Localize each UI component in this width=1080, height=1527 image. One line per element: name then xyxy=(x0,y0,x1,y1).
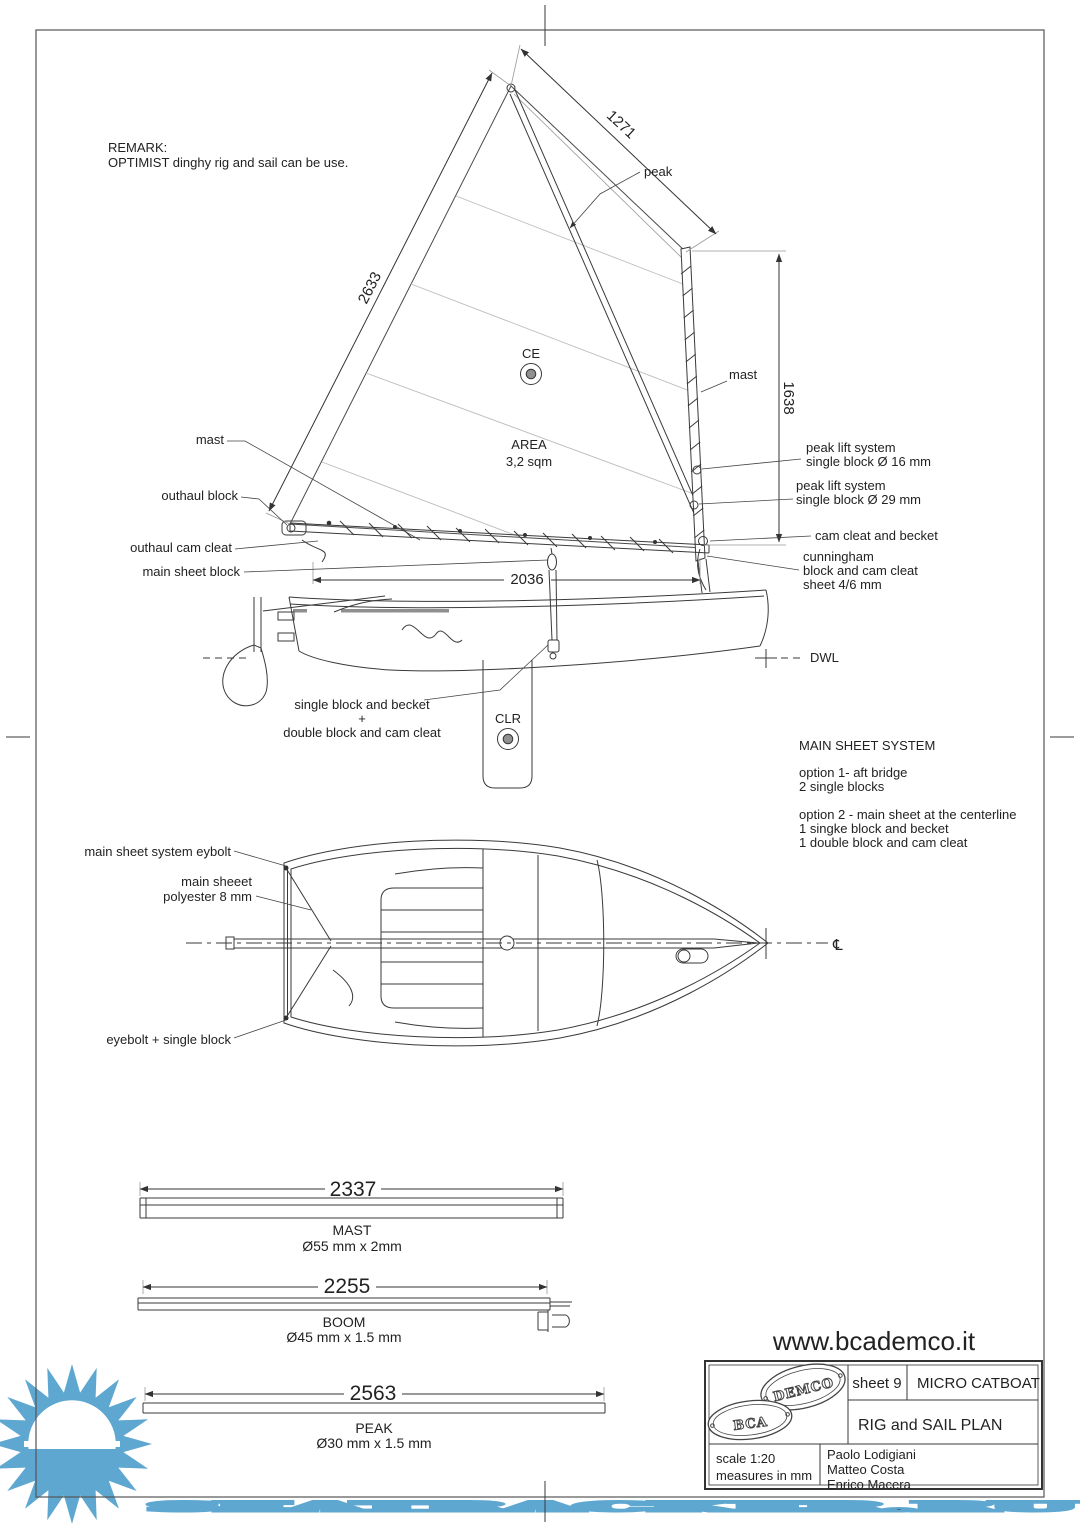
mast-callout-right: mast xyxy=(729,367,758,382)
plan-slot-circle xyxy=(678,950,690,962)
dim-leech-label: 2633 xyxy=(355,269,385,306)
callout-outhaul-block: outhaul block xyxy=(161,488,238,503)
mss-title: MAIN SHEET SYSTEM xyxy=(799,738,935,753)
callout-outhaul-cam-cleat: outhaul cam cleat xyxy=(130,540,232,555)
clr-label: CLR xyxy=(495,711,521,726)
plan-view-linework xyxy=(186,840,828,1046)
boom-length: 2255 xyxy=(324,1275,371,1298)
main-sheet-lower-fitting xyxy=(548,640,559,652)
peak-section: Ø30 mm x 1.5 mm xyxy=(316,1435,431,1451)
mss-option2-l1: option 2 - main sheet at the centerline xyxy=(799,807,1017,822)
mss-option2-l3: 1 double block and cam cleat xyxy=(799,835,968,850)
plan-eybolt-top xyxy=(284,866,289,871)
block-note-l3: double block and cam cleat xyxy=(283,725,441,740)
callout-main-sheet-block: main sheet block xyxy=(142,564,240,579)
main-sheet-falls xyxy=(549,548,557,640)
leader-peak xyxy=(570,172,640,228)
leader-plan-eyebolt-block xyxy=(234,1020,286,1038)
hull-name-strip2 xyxy=(341,609,449,613)
foot-lacing-dots xyxy=(327,521,657,544)
drawing-title: RIG and SAIL PLAN xyxy=(858,1417,1002,1434)
main-sheet-becket xyxy=(550,653,556,659)
plan-eybolt-label: main sheet system eybolt xyxy=(84,844,231,859)
dwl-cross xyxy=(755,649,777,668)
hull-stem xyxy=(760,590,768,646)
boom-clevis-fitting xyxy=(538,1310,569,1332)
rudder-stock xyxy=(254,597,261,652)
plan-eybolt-bottom xyxy=(284,1016,289,1021)
plan-stern-curve xyxy=(333,970,353,1006)
tiller xyxy=(263,596,385,611)
boom-name: BOOM xyxy=(323,1314,366,1330)
callout-peak-lift-1-l2: single block Ø 16 mm xyxy=(806,454,931,469)
remark-body: OPTIMIST dinghy rig and sail can be use. xyxy=(108,155,348,170)
page-border xyxy=(36,30,1044,1497)
leader-block-note xyxy=(424,645,548,700)
labels: REMARK: OPTIMIST dinghy rig and sail can… xyxy=(84,107,1039,1492)
boom-section: Ø45 mm x 1.5 mm xyxy=(286,1329,401,1345)
hull-sheer-inner xyxy=(290,596,764,608)
watermark-text: SEATRACKER.RU xyxy=(150,1500,1080,1515)
callout-cunningham-l3: sheet 4/6 mm xyxy=(803,577,882,592)
scale-label: scale 1:20 xyxy=(716,1451,775,1466)
author-2: Matteo Costa xyxy=(827,1462,905,1477)
ce-label: CE xyxy=(522,346,540,361)
callout-peak-lift-1-l1: peak lift system xyxy=(806,440,896,455)
mast-name: MAST xyxy=(333,1222,372,1238)
sail-seams xyxy=(322,196,694,537)
boat-name: MICRO CATBOAT xyxy=(917,1375,1040,1392)
website: www.bcademco.it xyxy=(772,1326,976,1356)
dim-head-label: 1271 xyxy=(603,107,639,142)
crop-marks xyxy=(6,5,1074,1522)
leader-outhaul-block xyxy=(241,497,287,525)
peak-callout: peak xyxy=(644,164,673,179)
leader-main-sheet-block xyxy=(244,560,548,572)
leader-cunningham xyxy=(707,556,799,570)
rudder-blade xyxy=(223,645,268,706)
mss-option1-l1: option 1- aft bridge xyxy=(799,765,907,780)
dim-head xyxy=(521,49,716,234)
plan-centerline-symbol: ℄ xyxy=(832,937,843,954)
main-sheet-block-shape xyxy=(548,554,557,570)
spar-drawings xyxy=(138,1182,605,1413)
clr-symbol-inner xyxy=(503,734,513,744)
author-3: Enrico Macera xyxy=(827,1477,912,1492)
drawing-sheet: SEATRACKER.RU xyxy=(0,0,1080,1527)
outhaul-rope xyxy=(302,540,325,562)
mss-option1-l2: 2 single blocks xyxy=(799,779,885,794)
callout-mast-left: mast xyxy=(196,432,225,447)
plan-sole-slats xyxy=(381,910,483,984)
dim-foot-label: 2036 xyxy=(510,571,543,588)
callout-cam-cleat-becket: cam cleat and becket xyxy=(815,528,938,543)
sheet-frame xyxy=(6,5,1074,1522)
block-note-l1: single block and becket xyxy=(294,697,430,712)
author-1: Paolo Lodigiani xyxy=(827,1447,916,1462)
sheet-number: sheet 9 xyxy=(852,1375,901,1392)
rudder-fitting-bottom xyxy=(278,633,294,641)
leader-peak-lift-16 xyxy=(702,459,801,469)
leader-outhaul-cam-cleat xyxy=(235,541,318,549)
plan-sheet-label-l2: polyester 8 mm xyxy=(163,889,252,904)
sun-horizon-gap xyxy=(24,1441,120,1447)
callout-cunningham-l2: block and cam cleat xyxy=(803,563,918,578)
hull-name-strip xyxy=(293,609,307,613)
block-note-l2: + xyxy=(358,711,366,726)
callout-peak-lift-2-l1: peak lift system xyxy=(796,478,886,493)
dim-mast-label: 1638 xyxy=(780,381,797,414)
callout-peak-lift-2-l2: single block Ø 29 mm xyxy=(796,492,921,507)
remark-title: REMARK: xyxy=(108,140,167,155)
ce-symbol-inner xyxy=(526,369,536,379)
dim-leech xyxy=(269,73,492,511)
mast-length: 2337 xyxy=(330,1178,377,1201)
plan-sheet-label-l1: main sheeet xyxy=(181,874,252,889)
leader-plan-eybolt xyxy=(234,851,286,866)
area-value: 3,2 sqm xyxy=(506,454,552,469)
rig-and-sail-plan-drawing: SEATRACKER.RU xyxy=(0,0,1080,1527)
hull-bottom xyxy=(299,646,760,671)
mss-option2-l2: 1 singke block and becket xyxy=(799,821,949,836)
callout-cunningham-l1: cunningham xyxy=(803,549,874,564)
units-label: measures in mm xyxy=(716,1468,812,1483)
peak-name: PEAK xyxy=(355,1420,393,1436)
sheet-rope-squiggle xyxy=(402,625,462,642)
mast-section: Ø55 mm x 2mm xyxy=(302,1238,402,1254)
hull-transom xyxy=(289,597,299,651)
peak-length: 2563 xyxy=(350,1382,397,1405)
dwl-label: DWL xyxy=(810,650,839,665)
plan-eyebolt-block-label: eyebolt + single block xyxy=(106,1032,231,1047)
leader-cam-cleat-becket xyxy=(710,536,811,541)
area-title: AREA xyxy=(511,437,547,452)
leader-mast-right xyxy=(701,381,727,392)
